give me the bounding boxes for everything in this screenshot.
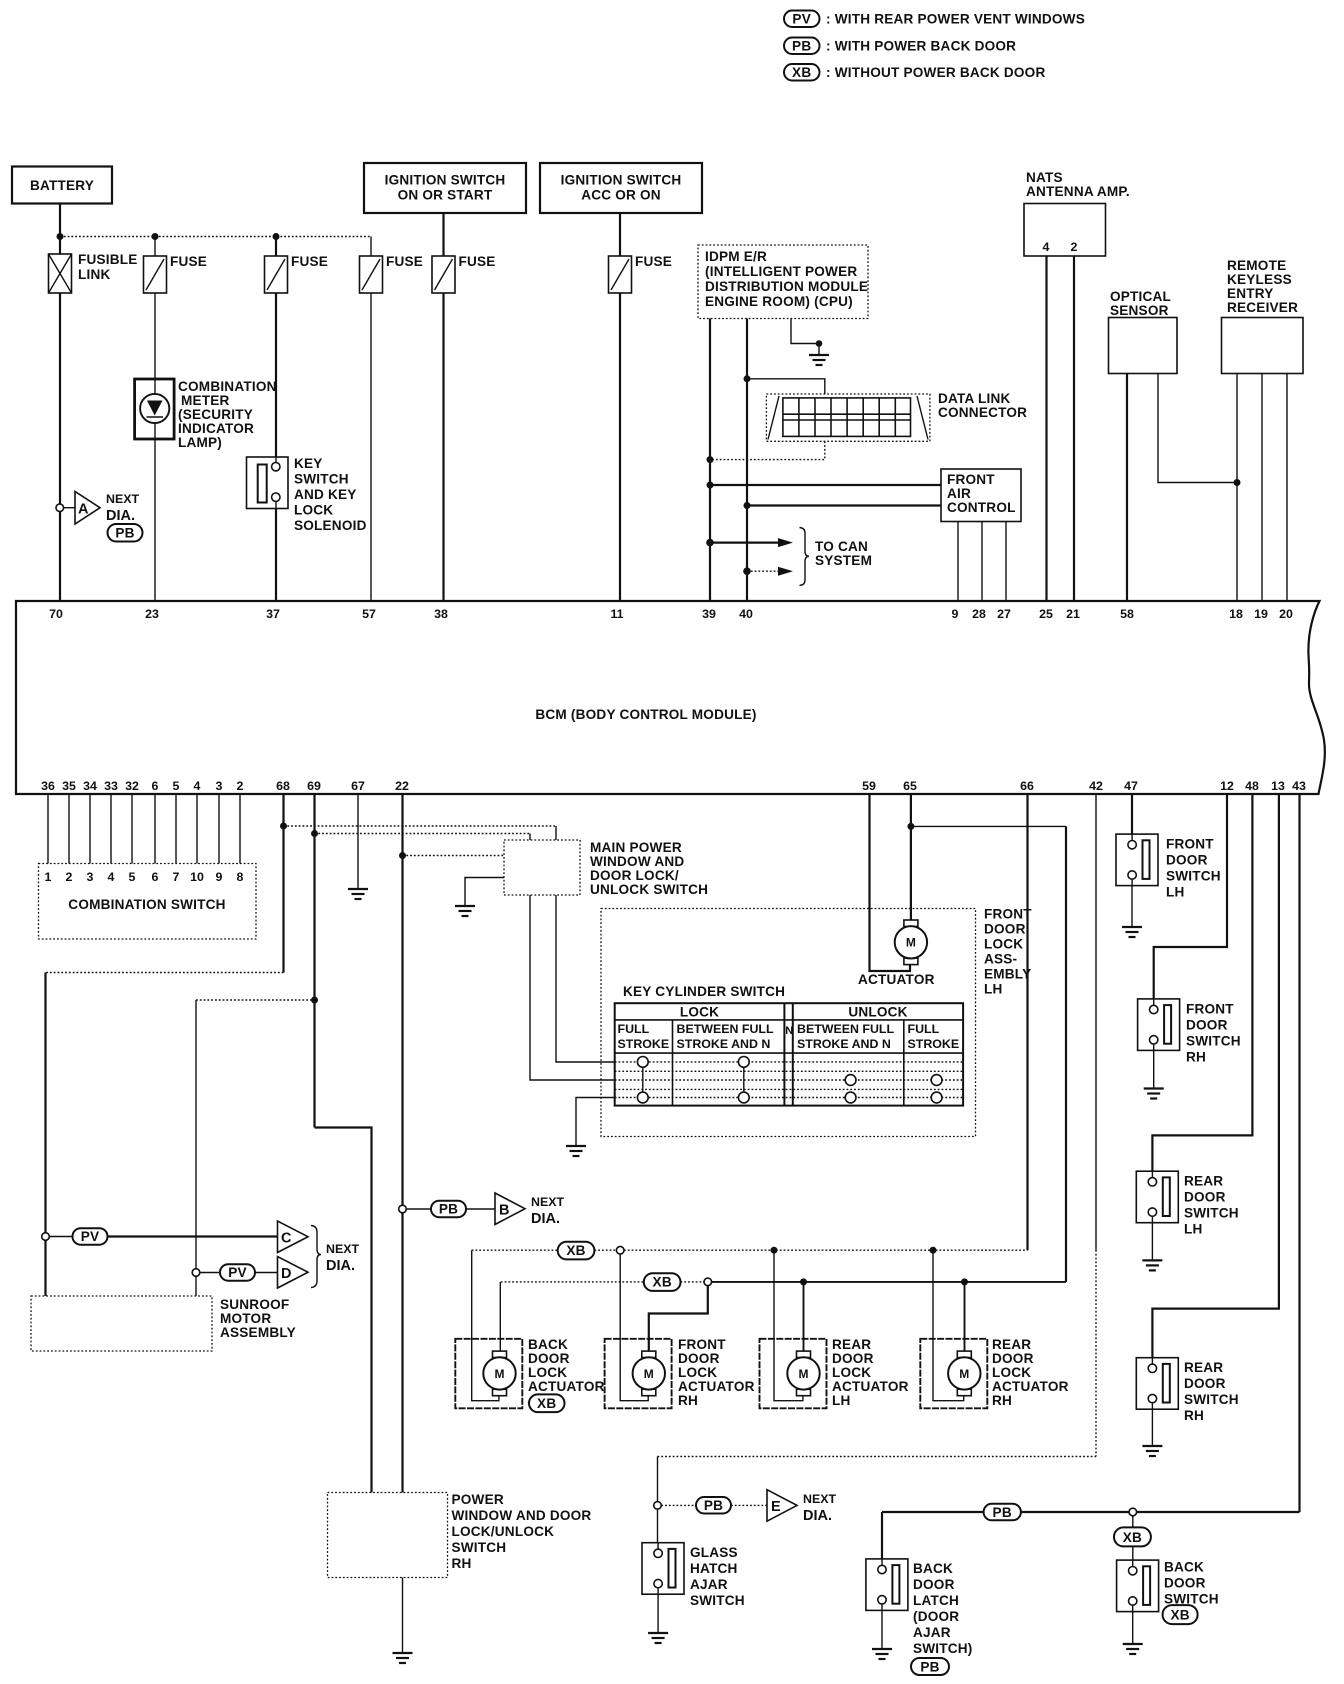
svg-text:REAR: REAR	[1184, 1174, 1223, 1189]
svg-text:DIA.: DIA.	[106, 508, 135, 524]
svg-text:58: 58	[1120, 607, 1134, 621]
svg-text:SWITCH: SWITCH	[1184, 1206, 1239, 1221]
svg-text:LH: LH	[984, 982, 1003, 997]
svg-text:INDICATOR: INDICATOR	[178, 421, 254, 436]
svg-text:AIR: AIR	[947, 486, 971, 501]
svg-text:4: 4	[108, 870, 115, 884]
svg-text:PV: PV	[792, 11, 811, 26]
svg-text:ASS-: ASS-	[984, 952, 1017, 967]
svg-text:LATCH: LATCH	[913, 1593, 959, 1608]
svg-text:67: 67	[351, 779, 365, 793]
svg-text:ENGINE ROOM) (CPU): ENGINE ROOM) (CPU)	[705, 294, 853, 309]
svg-text:STROKE: STROKE	[908, 1037, 960, 1051]
svg-text:MAIN POWER: MAIN POWER	[590, 840, 682, 855]
svg-text:COMBINATION: COMBINATION	[178, 379, 277, 394]
svg-text:D: D	[281, 1266, 291, 1282]
svg-text:PB: PB	[704, 1498, 723, 1513]
svg-text:(DOOR: (DOOR	[913, 1609, 959, 1624]
svg-text:FULL: FULL	[908, 1022, 940, 1036]
svg-text:SENSOR: SENSOR	[1110, 303, 1169, 318]
svg-text:BETWEEN FULL: BETWEEN FULL	[797, 1022, 894, 1036]
svg-text:RH: RH	[1186, 1050, 1206, 1065]
svg-text:LOCK: LOCK	[984, 937, 1023, 952]
svg-text:DOOR: DOOR	[1166, 853, 1208, 868]
svg-text:39: 39	[702, 607, 716, 621]
svg-text:LAMP): LAMP)	[178, 435, 222, 450]
svg-text:NEXT: NEXT	[106, 492, 139, 506]
svg-text:PB: PB	[439, 1202, 458, 1217]
svg-text:REAR: REAR	[1184, 1360, 1223, 1375]
svg-text:SOLENOID: SOLENOID	[294, 518, 367, 533]
svg-text:NEXT: NEXT	[803, 1492, 836, 1506]
svg-text:4: 4	[194, 779, 201, 793]
svg-text:: WITH REAR POWER VENT WINDOWS: : WITH REAR POWER VENT WINDOWS	[826, 11, 1085, 26]
svg-text:KEY: KEY	[294, 456, 323, 471]
svg-text:RH: RH	[1184, 1408, 1204, 1423]
svg-text:LOCK: LOCK	[680, 1005, 719, 1020]
svg-text:32: 32	[125, 779, 139, 793]
svg-text:NEXT: NEXT	[531, 1195, 564, 1209]
svg-text:DIA.: DIA.	[326, 1258, 355, 1274]
svg-text:AJAR: AJAR	[690, 1577, 728, 1592]
svg-text:C: C	[281, 1231, 292, 1247]
svg-text:59: 59	[862, 779, 876, 793]
svg-text:12: 12	[1220, 779, 1234, 793]
svg-text:LH: LH	[832, 1393, 851, 1408]
svg-text:SWITCH: SWITCH	[294, 472, 349, 487]
svg-text:FRONT: FRONT	[984, 907, 1032, 922]
svg-text:37: 37	[266, 607, 280, 621]
svg-text:KEYLESS: KEYLESS	[1227, 272, 1292, 287]
svg-text:68: 68	[276, 779, 290, 793]
svg-text:OPTICAL: OPTICAL	[1110, 289, 1171, 304]
svg-text:7: 7	[173, 870, 180, 884]
svg-text:DIA.: DIA.	[803, 1508, 832, 1524]
svg-text:ASSEMBLY: ASSEMBLY	[220, 1325, 296, 1340]
svg-text:22: 22	[395, 779, 409, 793]
svg-text:IGNITION SWITCH: IGNITION SWITCH	[385, 173, 506, 188]
svg-text:UNLOCK: UNLOCK	[848, 1005, 907, 1020]
svg-text:CONNECTOR: CONNECTOR	[938, 405, 1027, 420]
svg-text:47: 47	[1124, 779, 1138, 793]
svg-text:57: 57	[362, 607, 376, 621]
svg-text:27: 27	[997, 607, 1011, 621]
svg-text:FUSE: FUSE	[291, 254, 328, 269]
svg-text:ENTRY: ENTRY	[1227, 286, 1274, 301]
svg-text:ACTUATOR: ACTUATOR	[528, 1379, 605, 1394]
svg-text:RH: RH	[452, 1556, 472, 1571]
svg-text:ON OR START: ON OR START	[398, 188, 493, 203]
svg-text:ACTUATOR: ACTUATOR	[992, 1379, 1069, 1394]
svg-text:(SECURITY: (SECURITY	[178, 407, 253, 422]
svg-text:E: E	[771, 1499, 781, 1515]
svg-text:PB: PB	[993, 1505, 1012, 1520]
svg-text:40: 40	[739, 607, 753, 621]
svg-text:20: 20	[1279, 607, 1293, 621]
svg-text:FUSE: FUSE	[459, 254, 496, 269]
svg-text:4: 4	[1043, 240, 1050, 254]
svg-text:AND KEY: AND KEY	[294, 487, 357, 502]
svg-text:5: 5	[129, 870, 136, 884]
svg-text:DOOR: DOOR	[1164, 1576, 1206, 1591]
svg-text:DOOR: DOOR	[984, 922, 1026, 937]
svg-text:SWITCH): SWITCH)	[913, 1641, 973, 1656]
svg-text:LOCK/UNLOCK: LOCK/UNLOCK	[452, 1524, 555, 1539]
svg-text:FRONT: FRONT	[1186, 1002, 1234, 1017]
svg-text:42: 42	[1089, 779, 1103, 793]
svg-text:43: 43	[1292, 779, 1306, 793]
svg-text:5: 5	[173, 779, 180, 793]
svg-text:SWITCH: SWITCH	[1184, 1392, 1239, 1407]
svg-text:9: 9	[952, 607, 959, 621]
svg-text:BACK: BACK	[913, 1561, 953, 1576]
svg-text:KEY CYLINDER SWITCH: KEY CYLINDER SWITCH	[623, 984, 785, 999]
svg-text:REMOTE: REMOTE	[1227, 258, 1286, 273]
svg-text:FUSIBLE: FUSIBLE	[78, 252, 138, 267]
svg-text:IGNITION SWITCH: IGNITION SWITCH	[561, 173, 682, 188]
svg-text:66: 66	[1020, 779, 1034, 793]
svg-text:LOCK: LOCK	[678, 1365, 717, 1380]
svg-text:B: B	[499, 1203, 509, 1219]
svg-text:BACK: BACK	[1164, 1560, 1204, 1575]
svg-text:UNLOCK SWITCH: UNLOCK SWITCH	[590, 882, 708, 897]
svg-text:ANTENNA AMP.: ANTENNA AMP.	[1026, 184, 1130, 199]
svg-text:FUSE: FUSE	[386, 254, 423, 269]
svg-text:SWITCH: SWITCH	[452, 1540, 507, 1555]
svg-text:6: 6	[152, 779, 159, 793]
svg-text:PB: PB	[920, 1659, 939, 1674]
svg-text:10: 10	[190, 870, 204, 884]
svg-text:PV: PV	[81, 1229, 100, 1244]
svg-text:DOOR: DOOR	[992, 1351, 1034, 1366]
svg-text:BETWEEN FULL: BETWEEN FULL	[677, 1022, 774, 1036]
svg-text:BATTERY: BATTERY	[30, 178, 94, 193]
svg-text:48: 48	[1245, 779, 1259, 793]
svg-text:ACTUATOR: ACTUATOR	[858, 972, 935, 987]
svg-text:DOOR: DOOR	[832, 1351, 874, 1366]
svg-text:MOTOR: MOTOR	[220, 1311, 271, 1326]
svg-text:XB: XB	[1123, 1530, 1142, 1545]
svg-text:8: 8	[237, 870, 244, 884]
svg-text:: WITHOUT POWER BACK DOOR: : WITHOUT POWER BACK DOOR	[826, 65, 1045, 80]
svg-text:METER: METER	[181, 393, 230, 408]
svg-text:XB: XB	[1170, 1608, 1189, 1623]
svg-text:STROKE: STROKE	[618, 1037, 670, 1051]
svg-text:2: 2	[1071, 240, 1078, 254]
svg-text:DOOR: DOOR	[913, 1577, 955, 1592]
svg-text:23: 23	[145, 607, 159, 621]
svg-text:RECEIVER: RECEIVER	[1227, 300, 1298, 315]
svg-text:PB: PB	[115, 526, 134, 541]
svg-text:XB: XB	[537, 1396, 556, 1411]
svg-text:1: 1	[45, 870, 52, 884]
svg-text:36: 36	[41, 779, 55, 793]
svg-text:DOOR LOCK/: DOOR LOCK/	[590, 868, 679, 883]
svg-text:LH: LH	[1166, 885, 1185, 900]
svg-text:70: 70	[49, 607, 63, 621]
svg-text:POWER: POWER	[452, 1492, 504, 1507]
svg-text:3: 3	[216, 779, 223, 793]
svg-text:33: 33	[104, 779, 118, 793]
svg-text:LOCK: LOCK	[528, 1365, 567, 1380]
svg-text:LINK: LINK	[78, 267, 111, 282]
svg-text:HATCH: HATCH	[690, 1561, 738, 1576]
svg-text:ACTUATOR: ACTUATOR	[832, 1379, 909, 1394]
svg-text:DOOR: DOOR	[1184, 1376, 1226, 1391]
svg-text:2: 2	[66, 870, 73, 884]
svg-text:DOOR: DOOR	[528, 1351, 570, 1366]
svg-text:FUSE: FUSE	[170, 254, 207, 269]
svg-text:DATA LINK: DATA LINK	[938, 391, 1011, 406]
svg-text:NATS: NATS	[1026, 170, 1063, 185]
svg-text:BCM (BODY CONTROL MODULE): BCM (BODY CONTROL MODULE)	[535, 707, 756, 722]
svg-text:RH: RH	[678, 1393, 698, 1408]
svg-text:WINDOW AND DOOR: WINDOW AND DOOR	[452, 1508, 592, 1523]
svg-text:6: 6	[152, 870, 159, 884]
svg-text:STROKE AND N: STROKE AND N	[677, 1037, 771, 1051]
svg-text:LH: LH	[1184, 1222, 1203, 1237]
svg-text:ACTUATOR: ACTUATOR	[678, 1379, 755, 1394]
svg-text:DISTRIBUTION MODULE: DISTRIBUTION MODULE	[705, 279, 868, 294]
svg-text:EMBLY: EMBLY	[984, 967, 1031, 982]
svg-text:LOCK: LOCK	[992, 1365, 1031, 1380]
svg-text:STROKE AND N: STROKE AND N	[797, 1037, 891, 1051]
svg-text:FRONT: FRONT	[1166, 837, 1214, 852]
svg-text:WINDOW AND: WINDOW AND	[590, 854, 684, 869]
svg-text:CONTROL: CONTROL	[947, 500, 1016, 515]
svg-text:A: A	[78, 502, 89, 518]
svg-text:LOCK: LOCK	[294, 503, 333, 518]
svg-text:IDPM E/R: IDPM E/R	[705, 249, 767, 264]
svg-text:PV: PV	[228, 1265, 247, 1280]
svg-text:SWITCH: SWITCH	[690, 1593, 745, 1608]
svg-text:13: 13	[1271, 779, 1285, 793]
svg-text:65: 65	[903, 779, 917, 793]
svg-text:11: 11	[610, 607, 623, 621]
svg-text:REAR: REAR	[832, 1337, 871, 1352]
svg-text:TO CAN: TO CAN	[815, 539, 868, 554]
svg-text:34: 34	[83, 779, 97, 793]
svg-text:RH: RH	[992, 1393, 1012, 1408]
svg-text:DOOR: DOOR	[678, 1351, 720, 1366]
svg-text:69: 69	[307, 779, 321, 793]
svg-text:REAR: REAR	[992, 1337, 1031, 1352]
svg-text:28: 28	[972, 607, 986, 621]
svg-text:18: 18	[1229, 607, 1243, 621]
svg-text:25: 25	[1039, 607, 1053, 621]
svg-text:: WITH POWER BACK DOOR: : WITH POWER BACK DOOR	[826, 38, 1016, 53]
svg-text:BACK: BACK	[528, 1337, 568, 1352]
svg-text:2: 2	[237, 779, 244, 793]
svg-text:SWITCH: SWITCH	[1186, 1034, 1241, 1049]
svg-text:SYSTEM: SYSTEM	[815, 553, 872, 568]
svg-text:SUNROOF: SUNROOF	[220, 1297, 289, 1312]
svg-text:AJAR: AJAR	[913, 1625, 951, 1640]
svg-text:COMBINATION SWITCH: COMBINATION SWITCH	[68, 897, 225, 912]
svg-text:FUSE: FUSE	[635, 254, 672, 269]
svg-text:DOOR: DOOR	[1186, 1018, 1228, 1033]
svg-text:21: 21	[1066, 607, 1080, 621]
svg-text:9: 9	[216, 870, 223, 884]
svg-text:N: N	[785, 1025, 793, 1037]
svg-text:ACC OR ON: ACC OR ON	[581, 188, 661, 203]
svg-text:3: 3	[87, 870, 94, 884]
svg-text:35: 35	[62, 779, 76, 793]
svg-text:FULL: FULL	[618, 1022, 650, 1036]
svg-text:XB: XB	[653, 1275, 672, 1290]
svg-text:LOCK: LOCK	[832, 1365, 871, 1380]
svg-text:XB: XB	[792, 65, 811, 80]
svg-text:GLASS: GLASS	[690, 1545, 738, 1560]
svg-text:PB: PB	[792, 38, 811, 53]
svg-text:NEXT: NEXT	[326, 1242, 359, 1256]
svg-text:DIA.: DIA.	[531, 1211, 560, 1227]
svg-text:38: 38	[434, 607, 448, 621]
svg-text:XB: XB	[566, 1243, 585, 1258]
svg-text:SWITCH: SWITCH	[1166, 869, 1221, 884]
svg-text:FRONT: FRONT	[678, 1337, 726, 1352]
svg-text:DOOR: DOOR	[1184, 1190, 1226, 1205]
svg-text:(INTELLIGENT POWER: (INTELLIGENT POWER	[705, 264, 857, 279]
svg-text:FRONT: FRONT	[947, 472, 995, 487]
svg-text:19: 19	[1254, 607, 1268, 621]
